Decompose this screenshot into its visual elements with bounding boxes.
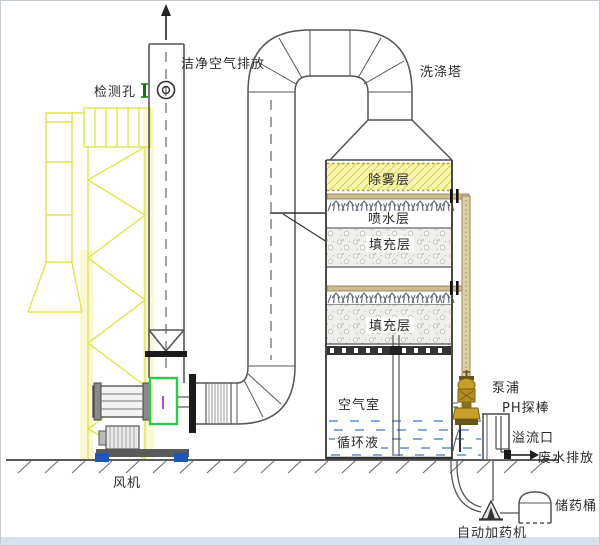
demister-label: 除雾层 xyxy=(368,173,410,188)
stack-flange xyxy=(145,351,187,357)
flexible-connector-green xyxy=(150,378,177,424)
inspection-hole-label: 检测孔 xyxy=(94,85,136,100)
tower-hood xyxy=(330,120,452,160)
duct-flange xyxy=(189,374,196,433)
inspection-port-fitting xyxy=(141,84,148,97)
packing-upper-label: 填充层 xyxy=(369,237,411,253)
ground-line xyxy=(6,460,558,473)
fan-label: 风机 xyxy=(113,476,141,491)
scrubber-tower-label: 洗涤塔 xyxy=(420,65,462,80)
spray-layer-label: 喷水层 xyxy=(368,212,410,227)
dosing-system xyxy=(451,461,551,523)
anchor-foot xyxy=(95,453,109,462)
spray-header-upper xyxy=(327,194,469,199)
anchor-foot xyxy=(174,453,188,462)
waste-water-label: 废水排放 xyxy=(538,450,594,466)
pump-label: 泵浦 xyxy=(492,381,520,396)
nozzle-row-upper xyxy=(328,201,454,211)
circulating-liquid-label: 循环液 xyxy=(337,436,379,451)
spray-header-lower xyxy=(327,286,469,291)
packing-lower-label: 填充层 xyxy=(369,318,411,334)
waste-water-line xyxy=(504,450,539,460)
clean-air-arrow xyxy=(161,4,171,40)
dosing-machine-label: 自动加药机 xyxy=(457,526,527,541)
scrubber-system-diagram: 洁净空气排放 检测孔 风机 xyxy=(0,0,600,546)
nozzle-row-lower xyxy=(328,293,454,303)
overflow-port-label: 溢流口 xyxy=(512,431,554,446)
diagram-canvas: 洁净空气排放 检测孔 风机 xyxy=(0,0,600,546)
canvas-flex-section xyxy=(209,384,227,423)
chemical-drum-label: 储药桶 xyxy=(555,499,597,514)
air-chamber-label: 空气室 xyxy=(338,397,380,413)
inspection-hole xyxy=(141,82,175,99)
chemical-drum xyxy=(519,492,551,523)
